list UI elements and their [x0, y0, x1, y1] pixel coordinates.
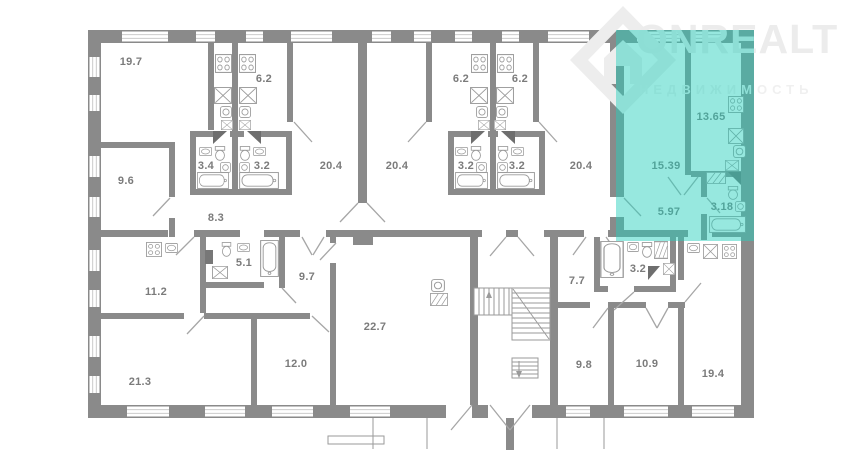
room-area-label: 3.2 — [458, 160, 474, 172]
room-area-label: 6.2 — [256, 73, 272, 85]
room-area-label: 9.8 — [576, 359, 592, 371]
room-area-label: 3.4 — [198, 160, 214, 172]
room-area-label: 9.6 — [118, 175, 134, 187]
room-area-label: 19.4 — [702, 368, 725, 380]
room-area-label: 12.0 — [285, 358, 308, 370]
room-area-label: 7.7 — [569, 275, 585, 287]
room-area-label: 11.2 — [145, 286, 167, 298]
room-area-label: 19.7 — [120, 56, 143, 68]
room-area-label: 3.2 — [630, 263, 646, 275]
room-area-label: 6.2 — [512, 73, 528, 85]
room-area-label: 8.3 — [208, 212, 224, 224]
room-area-label: 20.4 — [386, 160, 409, 172]
room-area-label: 20.4 — [320, 160, 343, 172]
room-area-label: 21.3 — [129, 376, 152, 388]
room-area-label: 6.2 — [453, 73, 469, 85]
room-area-label: 22.7 — [364, 321, 387, 333]
floor-plan-page: ONREALT НЕДВИЖИМОСТЬ 19.7 6.2 20.4 20.4 … — [0, 0, 854, 450]
room-area-label: 20.4 — [570, 160, 593, 172]
room-area-label: 9.7 — [299, 271, 315, 283]
room-area-label: 3.2 — [509, 160, 525, 172]
room-area-label: 10.9 — [636, 358, 659, 370]
room-area-label: 3.2 — [254, 160, 270, 172]
room-area-label: 5.1 — [236, 257, 252, 269]
highlighted-apartment-overlay[interactable] — [616, 30, 754, 241]
